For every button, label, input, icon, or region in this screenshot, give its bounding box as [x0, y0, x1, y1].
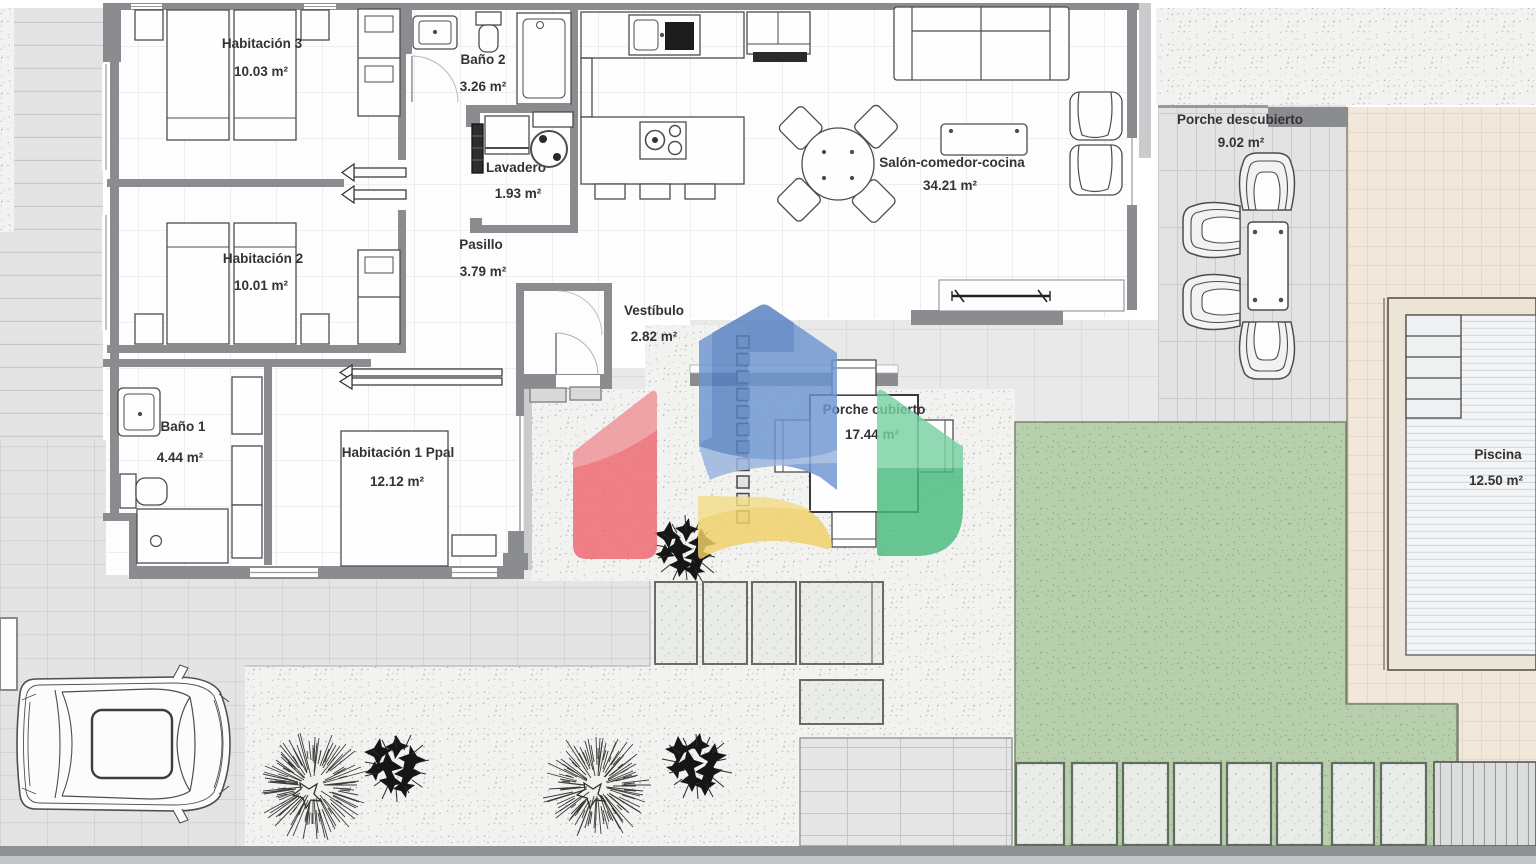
svg-text:Piscina: Piscina: [1474, 447, 1522, 462]
svg-text:Habitación 3: Habitación 3: [222, 36, 303, 51]
svg-text:10.03 m²: 10.03 m²: [234, 64, 289, 79]
svg-text:Pasillo: Pasillo: [459, 237, 503, 252]
svg-text:4.44 m²: 4.44 m²: [157, 450, 204, 465]
svg-text:Vestíbulo: Vestíbulo: [624, 303, 684, 318]
svg-text:Habitación 2: Habitación 2: [223, 251, 303, 266]
svg-text:10.01 m²: 10.01 m²: [234, 278, 289, 293]
svg-text:3.26 m²: 3.26 m²: [460, 79, 507, 94]
svg-text:3.79 m²: 3.79 m²: [460, 264, 507, 279]
svg-text:12.50 m²: 12.50 m²: [1469, 473, 1524, 488]
svg-text:Habitación 1 Ppal: Habitación 1 Ppal: [342, 445, 455, 460]
svg-text:Salón-comedor-cocina: Salón-comedor-cocina: [879, 155, 1025, 170]
svg-text:Porche descubierto: Porche descubierto: [1177, 112, 1303, 127]
svg-text:1.93 m²: 1.93 m²: [495, 186, 542, 201]
svg-text:34.21 m²: 34.21 m²: [923, 178, 978, 193]
svg-text:2.82 m²: 2.82 m²: [631, 329, 678, 344]
svg-text:Baño 1: Baño 1: [160, 419, 206, 434]
svg-text:9.02 m²: 9.02 m²: [1218, 135, 1265, 150]
svg-text:12.12 m²: 12.12 m²: [370, 474, 425, 489]
svg-text:Baño 2: Baño 2: [460, 52, 505, 67]
